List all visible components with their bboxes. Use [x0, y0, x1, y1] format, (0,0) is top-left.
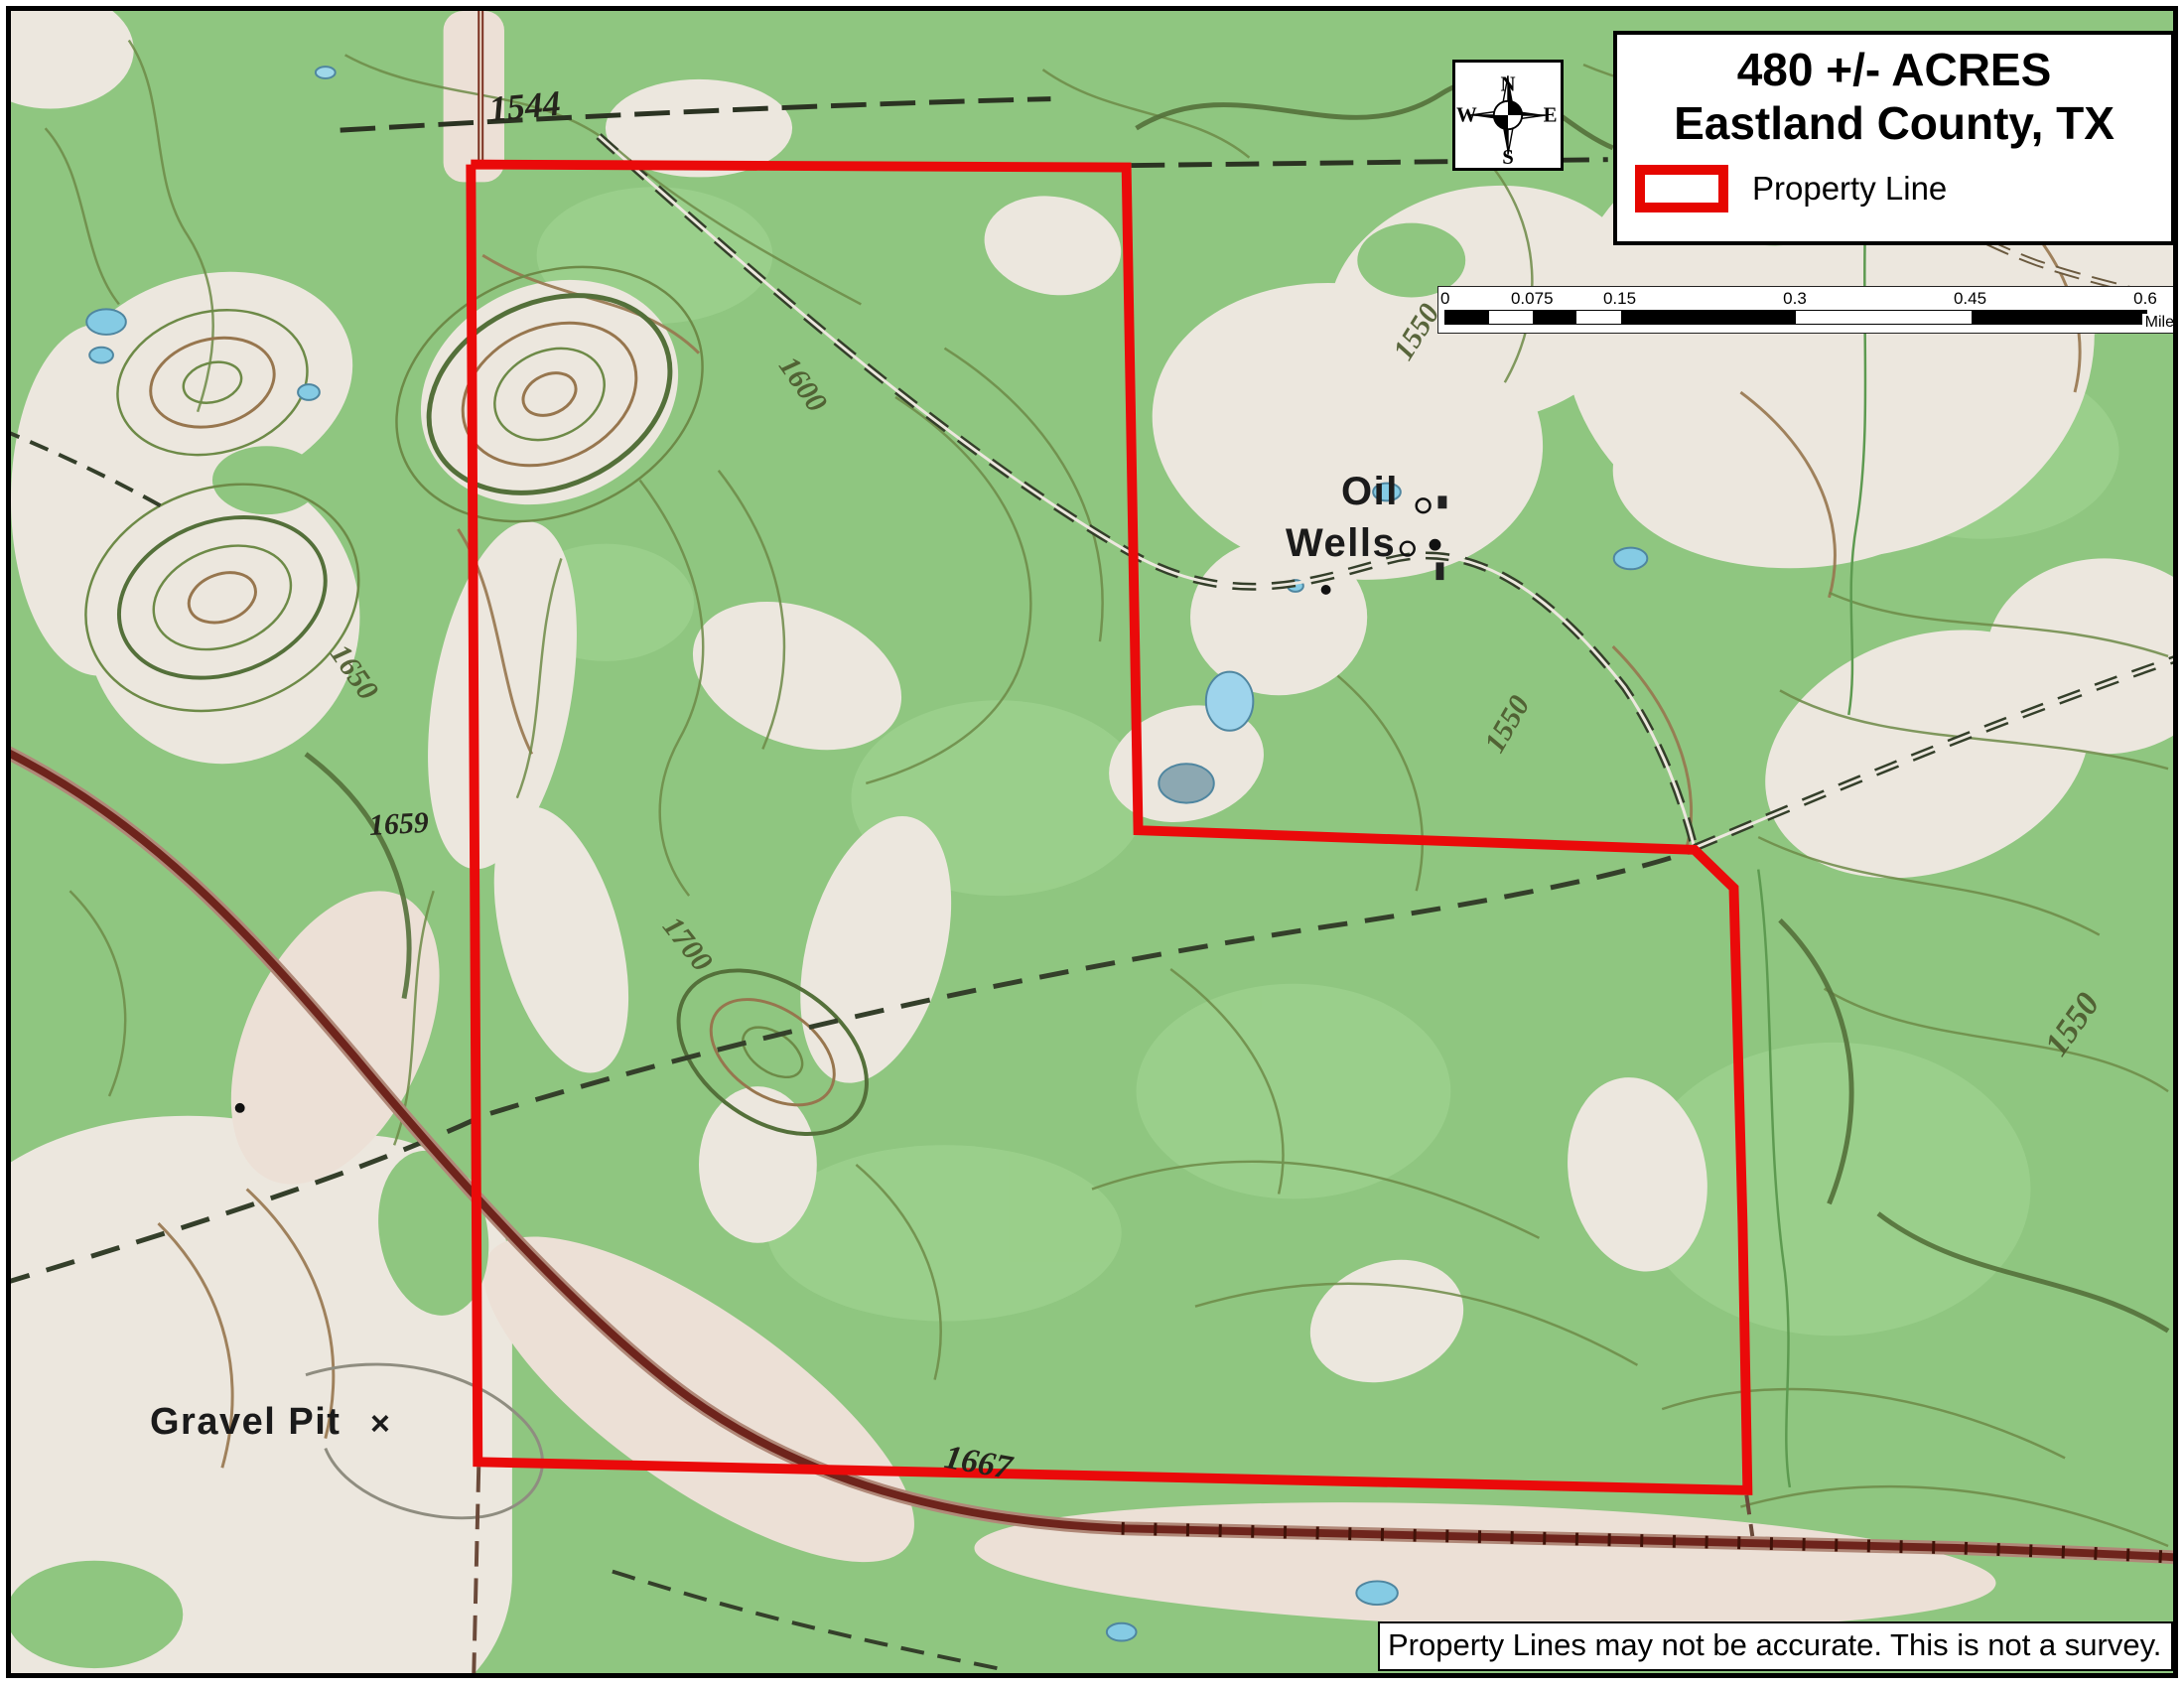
- compass-w: W: [1456, 103, 1477, 127]
- scale-segment: [1796, 311, 1972, 324]
- acreage-title: 480 +/- ACRES: [1617, 43, 2171, 96]
- compass-n: N: [1500, 71, 1515, 95]
- scale-segment: [1576, 311, 1620, 324]
- scale-segment: [1445, 311, 1489, 324]
- scale-segment: [1621, 311, 1797, 324]
- county-title: Eastland County, TX: [1617, 96, 2171, 150]
- map-label: 1600: [771, 351, 833, 419]
- map-label: 1659: [368, 806, 430, 843]
- map-label: 1667: [941, 1439, 1015, 1487]
- disclaimer-note: Property Lines may not be accurate. This…: [1378, 1621, 2173, 1671]
- map-label: 1544: [487, 82, 562, 130]
- scale-tick: 0.45: [1954, 289, 1986, 309]
- map-label: 1700: [655, 911, 719, 978]
- scale-segment: [1533, 311, 1576, 324]
- scale-segment: [1489, 311, 1533, 324]
- scale-tick: 0.6: [2133, 289, 2157, 309]
- map-label: ×: [370, 1405, 391, 1444]
- map-label: 1550: [2038, 986, 2108, 1062]
- compass-star: N S W E: [1455, 63, 1561, 168]
- scale-segment: [1972, 311, 2147, 324]
- scale-bar: 00.0750.150.30.450.6 Miles: [1437, 286, 2178, 334]
- title-box: 480 +/- ACRES Eastland County, TX Proper…: [1613, 31, 2175, 245]
- legend-row: Property Line: [1635, 165, 2171, 212]
- map-frame: 154416001650165917001667155015501550OilW…: [6, 6, 2178, 1678]
- map-label: 1550: [1478, 690, 1537, 759]
- compass-rose: N S W E: [1452, 60, 1564, 171]
- scale-tick: 0.15: [1603, 289, 1636, 309]
- legend-label: Property Line: [1752, 170, 1947, 208]
- scale-tick: 0: [1440, 289, 1449, 309]
- scale-tick: 0.075: [1511, 289, 1554, 309]
- map-label-layer: 154416001650165917001667155015501550OilW…: [11, 11, 2173, 1673]
- map-page: 154416001650165917001667155015501550OilW…: [0, 0, 2184, 1688]
- map-label: 1650: [323, 638, 384, 707]
- compass-e: E: [1544, 103, 1558, 127]
- scale-bar-strip: [1444, 310, 2147, 325]
- compass-s: S: [1502, 145, 1514, 168]
- map-label: Wells: [1286, 521, 1396, 566]
- scale-unit: Miles: [2142, 314, 2178, 332]
- map-label: Oil: [1341, 470, 1399, 514]
- scale-tick: 0.3: [1783, 289, 1807, 309]
- map-label: Gravel Pit: [150, 1401, 341, 1444]
- property-line-swatch: [1635, 165, 1728, 212]
